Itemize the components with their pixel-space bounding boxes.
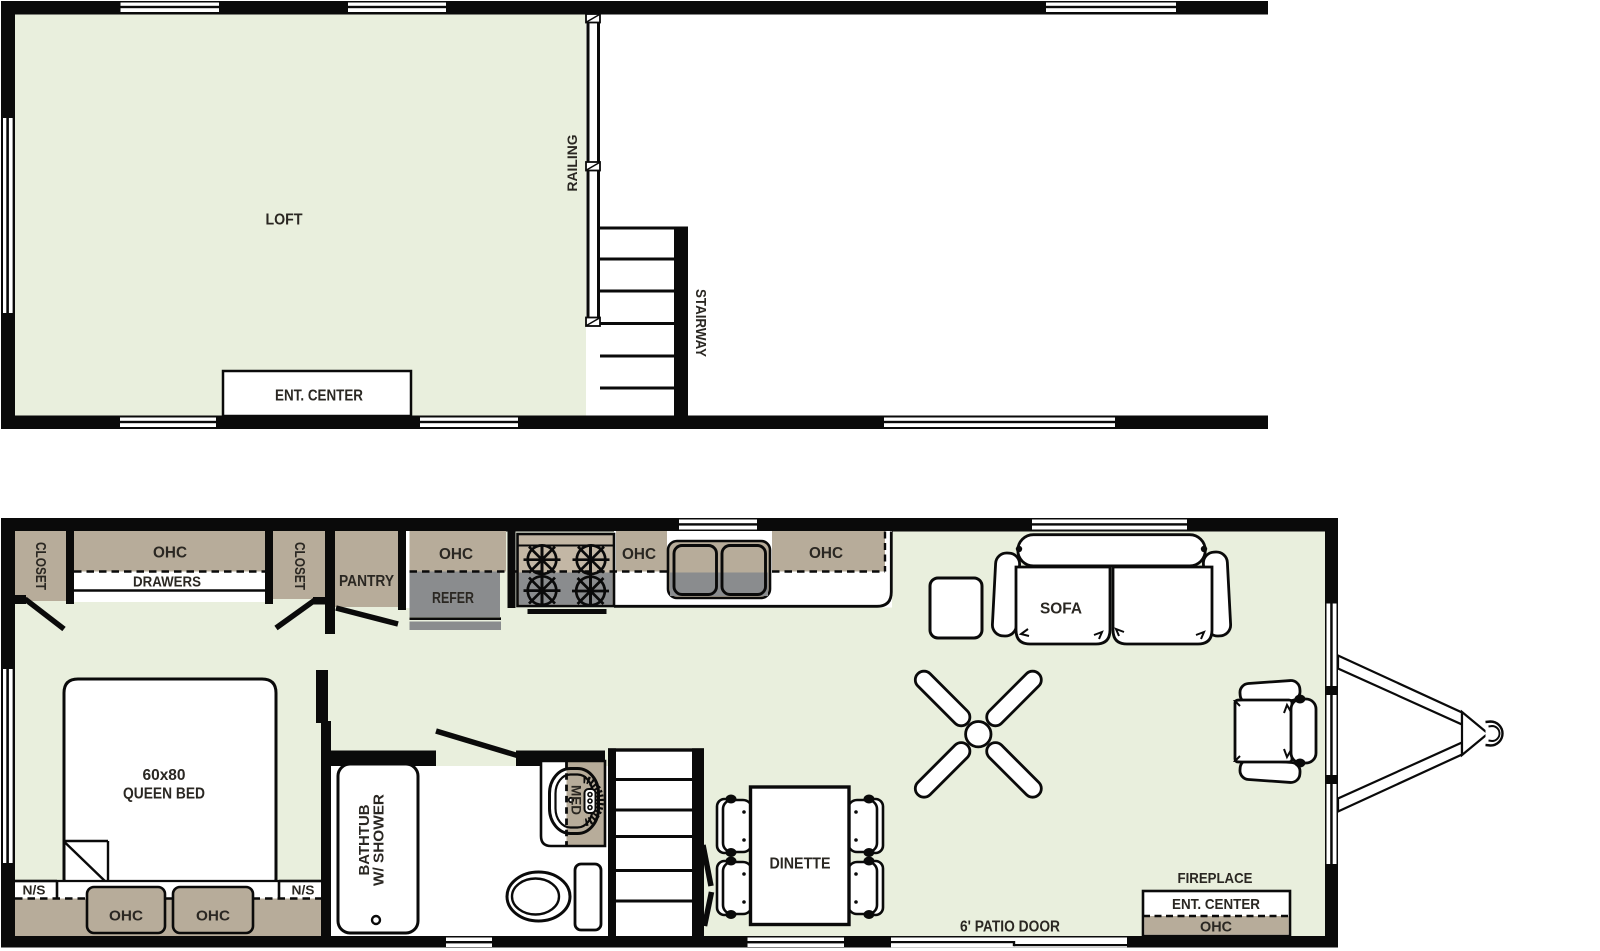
- svg-text:FIREPLACE: FIREPLACE: [1178, 870, 1253, 887]
- svg-text:REFER: REFER: [432, 590, 474, 607]
- svg-text:N/S: N/S: [292, 884, 315, 898]
- svg-text:SOFA: SOFA: [1040, 601, 1082, 618]
- svg-text:W/ SHOWER: W/ SHOWER: [372, 793, 388, 886]
- svg-text:OHC: OHC: [622, 546, 656, 563]
- svg-text:OHC: OHC: [109, 908, 143, 925]
- svg-text:OHC: OHC: [196, 908, 230, 925]
- svg-text:OHC: OHC: [809, 545, 843, 562]
- svg-text:RAILING: RAILING: [564, 134, 580, 191]
- svg-text:DRAWERS: DRAWERS: [133, 574, 201, 591]
- svg-text:DINETTE: DINETTE: [770, 856, 831, 873]
- svg-text:MED: MED: [569, 785, 584, 815]
- svg-text:CLOSET: CLOSET: [32, 542, 49, 590]
- svg-text:N/S: N/S: [23, 884, 46, 898]
- svg-text:STAIRWAY: STAIRWAY: [692, 289, 708, 357]
- svg-text:60x80: 60x80: [143, 767, 186, 784]
- svg-text:ENT. CENTER: ENT. CENTER: [1172, 896, 1260, 913]
- svg-text:PANTRY: PANTRY: [339, 573, 395, 590]
- svg-text:QUEEN BED: QUEEN BED: [123, 786, 205, 803]
- svg-text:ENT. CENTER: ENT. CENTER: [275, 388, 363, 405]
- svg-text:OHC: OHC: [439, 546, 473, 563]
- svg-text:OHC: OHC: [1200, 919, 1232, 936]
- svg-text:6' PATIO DOOR: 6' PATIO DOOR: [960, 919, 1060, 936]
- svg-text:LOFT: LOFT: [266, 212, 303, 229]
- svg-text:CLOSET: CLOSET: [291, 542, 308, 590]
- svg-text:OHC: OHC: [153, 545, 187, 562]
